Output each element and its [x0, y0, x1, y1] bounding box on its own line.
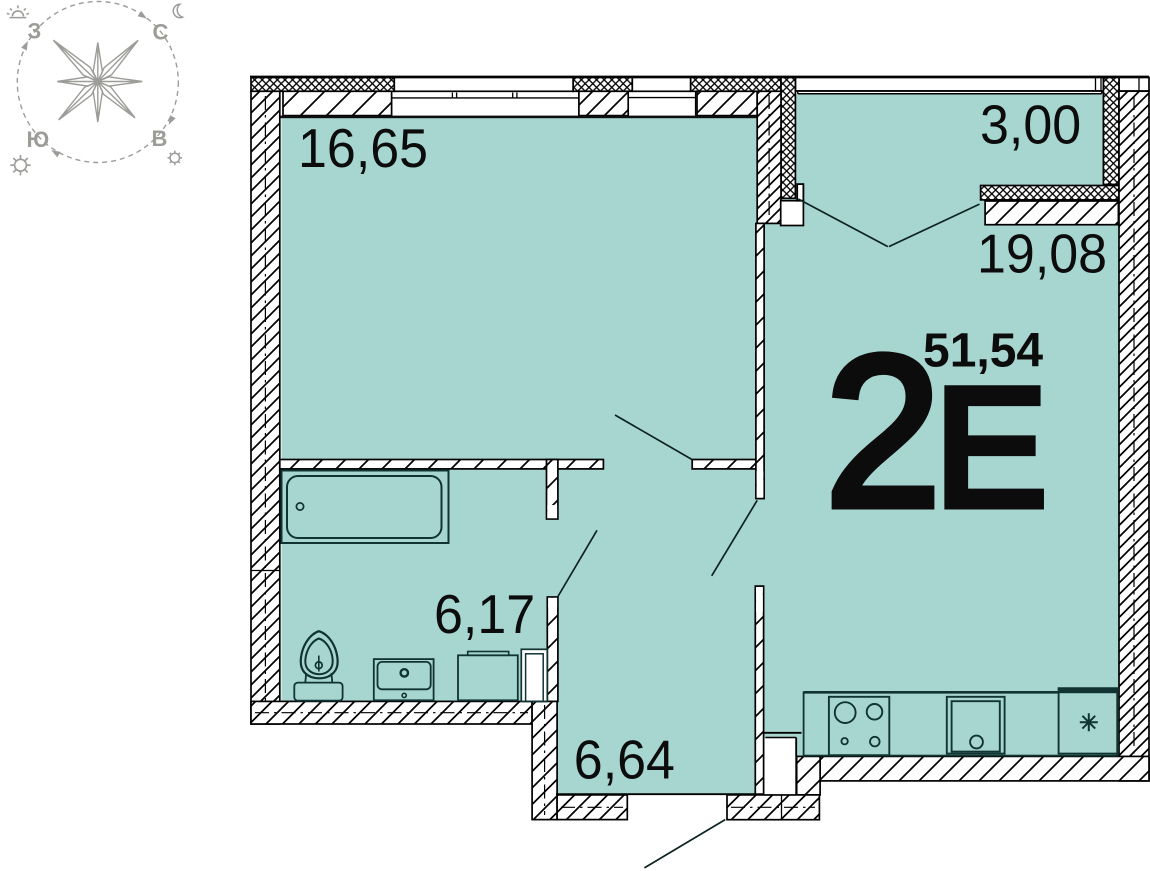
svg-text:3,00: 3,00	[980, 95, 1081, 156]
svg-text:З: З	[28, 19, 42, 44]
svg-text:2: 2	[825, 311, 941, 552]
svg-text:Ю: Ю	[27, 127, 50, 152]
svg-text:16,65: 16,65	[298, 119, 428, 180]
svg-text:В: В	[152, 126, 168, 151]
svg-text:19,08: 19,08	[977, 224, 1107, 285]
svg-text:6,64: 6,64	[574, 730, 675, 791]
svg-text:С: С	[153, 20, 169, 45]
svg-text:Е: Е	[935, 353, 1048, 542]
svg-text:6,17: 6,17	[434, 585, 535, 646]
